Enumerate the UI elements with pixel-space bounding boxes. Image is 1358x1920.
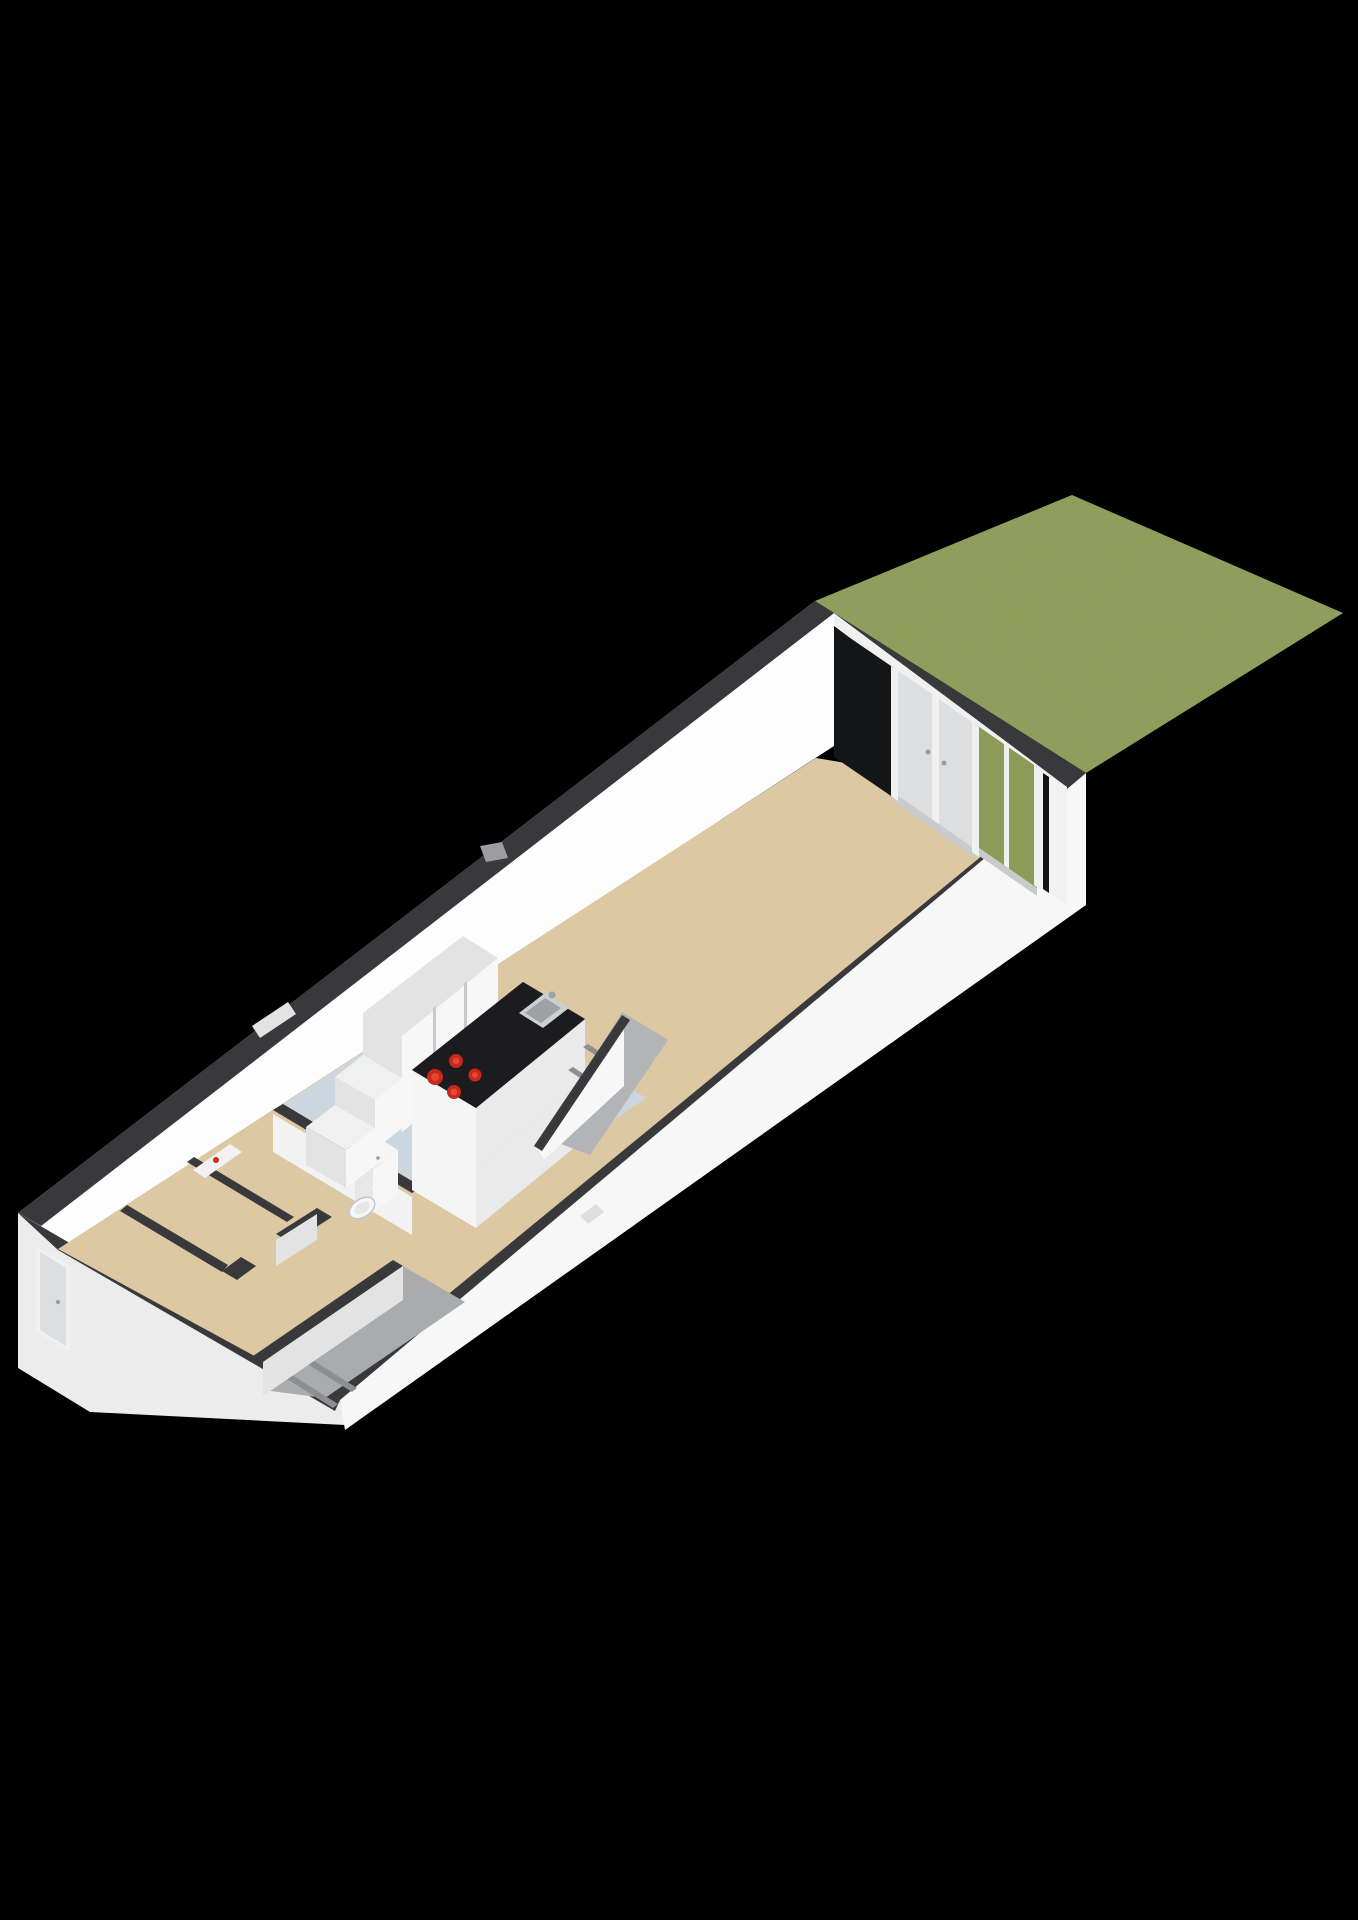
- hob-burner-1-inner: [431, 1073, 439, 1081]
- glazing-post-1: [891, 666, 898, 801]
- glazing-post-2: [972, 722, 979, 857]
- front-door: [40, 1252, 66, 1346]
- boiler-outlet-dot-2: [376, 1156, 380, 1160]
- sink-faucet: [549, 992, 556, 999]
- hob-burner-2-inner: [453, 1058, 460, 1065]
- glazing-post-3: [1034, 765, 1041, 890]
- open-door-dark-edge: [1043, 773, 1049, 893]
- front-door-handle: [56, 1300, 60, 1304]
- hob-burner-4-inner: [472, 1072, 478, 1078]
- radiator-red-valve: [213, 1157, 219, 1163]
- door-handle-right: [942, 761, 947, 766]
- floorplan-3d-render: [0, 0, 1358, 1920]
- glass-mullion: [1004, 744, 1009, 871]
- floorplan-canvas: [0, 0, 1358, 1920]
- french-door-meeting-stile: [932, 694, 939, 829]
- hob-burner-3-inner: [451, 1089, 458, 1096]
- door-handle-left: [926, 750, 931, 755]
- facade-end-panel: [1037, 767, 1067, 905]
